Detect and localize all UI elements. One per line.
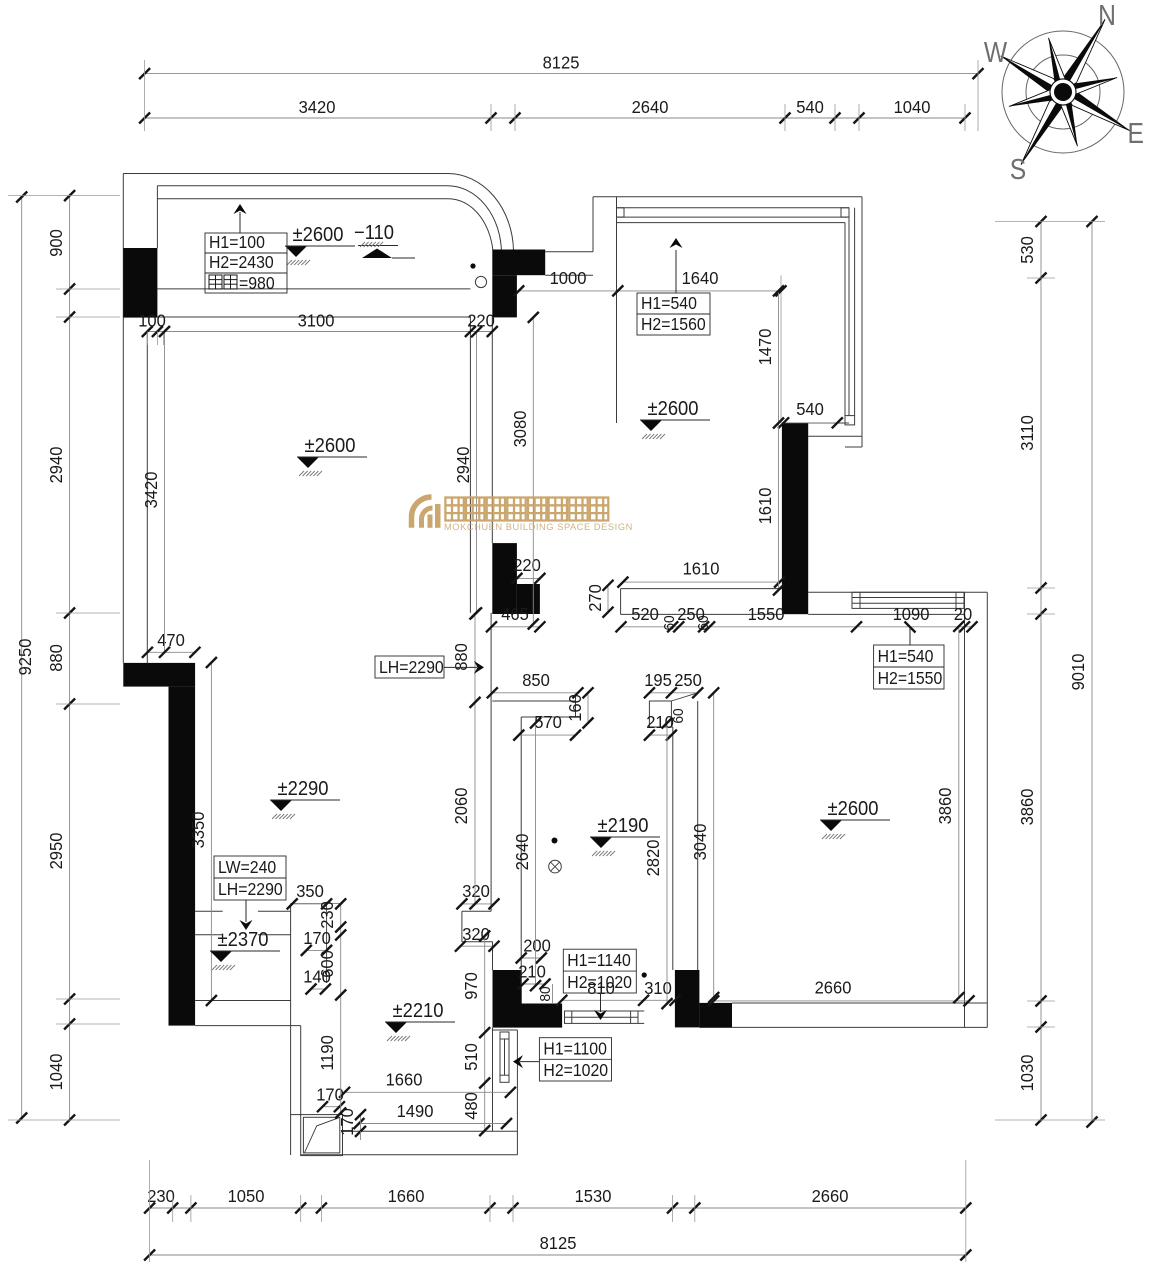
svg-text:W: W xyxy=(984,36,1008,68)
svg-text:1470: 1470 xyxy=(754,329,775,366)
svg-text:±2600: ±2600 xyxy=(827,798,878,820)
svg-text:N: N xyxy=(1098,0,1116,31)
svg-text:3420: 3420 xyxy=(140,472,161,509)
svg-text:2940: 2940 xyxy=(452,447,473,484)
svg-text:220: 220 xyxy=(513,554,541,575)
svg-text:195: 195 xyxy=(644,669,672,690)
svg-text:H2=1550: H2=1550 xyxy=(878,668,943,688)
svg-text:540: 540 xyxy=(796,96,824,117)
svg-text:3040: 3040 xyxy=(689,824,710,861)
svg-text:1550: 1550 xyxy=(748,603,785,624)
svg-text:H2=1020: H2=1020 xyxy=(543,1060,608,1080)
svg-text:1610: 1610 xyxy=(754,488,775,525)
svg-text:900: 900 xyxy=(45,229,66,257)
svg-text:1660: 1660 xyxy=(386,1069,423,1090)
svg-text:1090: 1090 xyxy=(893,603,930,624)
svg-text:210: 210 xyxy=(518,961,546,982)
svg-text:3860: 3860 xyxy=(934,788,955,825)
svg-text:±2190: ±2190 xyxy=(597,815,648,837)
svg-text:−110: −110 xyxy=(354,222,394,244)
svg-text:H1=540: H1=540 xyxy=(641,293,697,313)
svg-text:60: 60 xyxy=(671,708,688,723)
svg-text:H2=1560: H2=1560 xyxy=(641,314,706,334)
svg-text:170: 170 xyxy=(316,1084,344,1105)
svg-text:=980: =980 xyxy=(239,273,275,293)
svg-text:230: 230 xyxy=(147,1185,175,1206)
svg-text:E: E xyxy=(1127,117,1143,149)
svg-text:H1=100: H1=100 xyxy=(209,232,265,252)
svg-text:8125: 8125 xyxy=(540,1232,577,1253)
svg-text:230: 230 xyxy=(316,901,337,929)
svg-text:60: 60 xyxy=(662,615,679,630)
svg-text:LH=2290: LH=2290 xyxy=(379,657,444,677)
svg-text:3350: 3350 xyxy=(187,812,208,849)
svg-text:1660: 1660 xyxy=(388,1185,425,1206)
svg-text:1610: 1610 xyxy=(683,558,720,579)
svg-text:170: 170 xyxy=(336,1108,357,1136)
svg-text:320: 320 xyxy=(462,880,490,901)
svg-text:970: 970 xyxy=(460,972,481,1000)
svg-text:1530: 1530 xyxy=(575,1185,612,1206)
svg-text:1050: 1050 xyxy=(228,1185,265,1206)
svg-text:9250: 9250 xyxy=(14,639,35,676)
svg-text:2940: 2940 xyxy=(45,447,66,484)
svg-text:8125: 8125 xyxy=(543,52,580,73)
svg-text:600: 600 xyxy=(316,950,337,978)
svg-text:S: S xyxy=(1010,153,1026,185)
svg-text:250: 250 xyxy=(674,669,702,690)
svg-text:H1=540: H1=540 xyxy=(878,646,934,666)
svg-text:510: 510 xyxy=(460,1043,481,1071)
svg-text:2640: 2640 xyxy=(511,834,532,871)
svg-text:3860: 3860 xyxy=(1016,789,1037,826)
svg-text:2660: 2660 xyxy=(815,977,852,998)
svg-text:350: 350 xyxy=(296,880,324,901)
svg-text:3100: 3100 xyxy=(298,310,335,331)
svg-text:LW=240: LW=240 xyxy=(218,857,276,877)
svg-text:200: 200 xyxy=(523,935,551,956)
svg-text:±2600: ±2600 xyxy=(304,435,355,457)
svg-text:170: 170 xyxy=(303,927,331,948)
svg-text:2950: 2950 xyxy=(45,833,66,870)
svg-text:H1=1140: H1=1140 xyxy=(567,950,631,970)
svg-text:±2290: ±2290 xyxy=(277,778,328,800)
svg-text:1000: 1000 xyxy=(550,267,587,288)
svg-text:880: 880 xyxy=(450,643,471,671)
svg-text:1490: 1490 xyxy=(397,1100,434,1121)
svg-text:470: 470 xyxy=(157,629,185,650)
svg-text:540: 540 xyxy=(796,398,824,419)
svg-text:160: 160 xyxy=(564,694,585,722)
svg-text:80: 80 xyxy=(538,986,555,1001)
svg-text:1040: 1040 xyxy=(45,1054,66,1091)
svg-text:270: 270 xyxy=(584,584,605,612)
svg-text:1030: 1030 xyxy=(1016,1055,1037,1092)
svg-text:465: 465 xyxy=(501,603,529,624)
svg-text:2640: 2640 xyxy=(632,96,669,117)
svg-text:2820: 2820 xyxy=(642,840,663,877)
svg-text:1190: 1190 xyxy=(316,1035,337,1071)
svg-text:880: 880 xyxy=(45,644,66,672)
svg-text:H1=1100: H1=1100 xyxy=(543,1038,607,1058)
svg-text:3110: 3110 xyxy=(1016,415,1037,451)
svg-text:1640: 1640 xyxy=(682,267,719,288)
svg-text:±2370: ±2370 xyxy=(217,929,268,951)
svg-text:±2600: ±2600 xyxy=(647,398,698,420)
svg-text:480: 480 xyxy=(460,1092,481,1120)
svg-text:3420: 3420 xyxy=(299,96,336,117)
svg-text:±2600: ±2600 xyxy=(292,224,343,246)
svg-text:MOKCHUEN BUILDING SPACE DESIGN: MOKCHUEN BUILDING SPACE DESIGN xyxy=(444,522,633,532)
svg-text:H2=1020: H2=1020 xyxy=(567,972,632,992)
svg-text:H2=2430: H2=2430 xyxy=(209,252,274,272)
svg-text:310: 310 xyxy=(644,977,672,998)
svg-text:3080: 3080 xyxy=(509,411,530,448)
svg-text:530: 530 xyxy=(1016,236,1037,264)
svg-text:850: 850 xyxy=(522,669,550,690)
svg-text:2060: 2060 xyxy=(450,788,471,825)
svg-text:9010: 9010 xyxy=(1067,654,1088,691)
svg-text:2660: 2660 xyxy=(812,1185,849,1206)
svg-text:520: 520 xyxy=(631,603,659,624)
svg-text:60: 60 xyxy=(696,615,713,630)
svg-text:LH=2290: LH=2290 xyxy=(218,879,283,899)
svg-text:1040: 1040 xyxy=(894,96,931,117)
svg-text:±2210: ±2210 xyxy=(392,1000,443,1022)
svg-text:100: 100 xyxy=(138,310,166,331)
